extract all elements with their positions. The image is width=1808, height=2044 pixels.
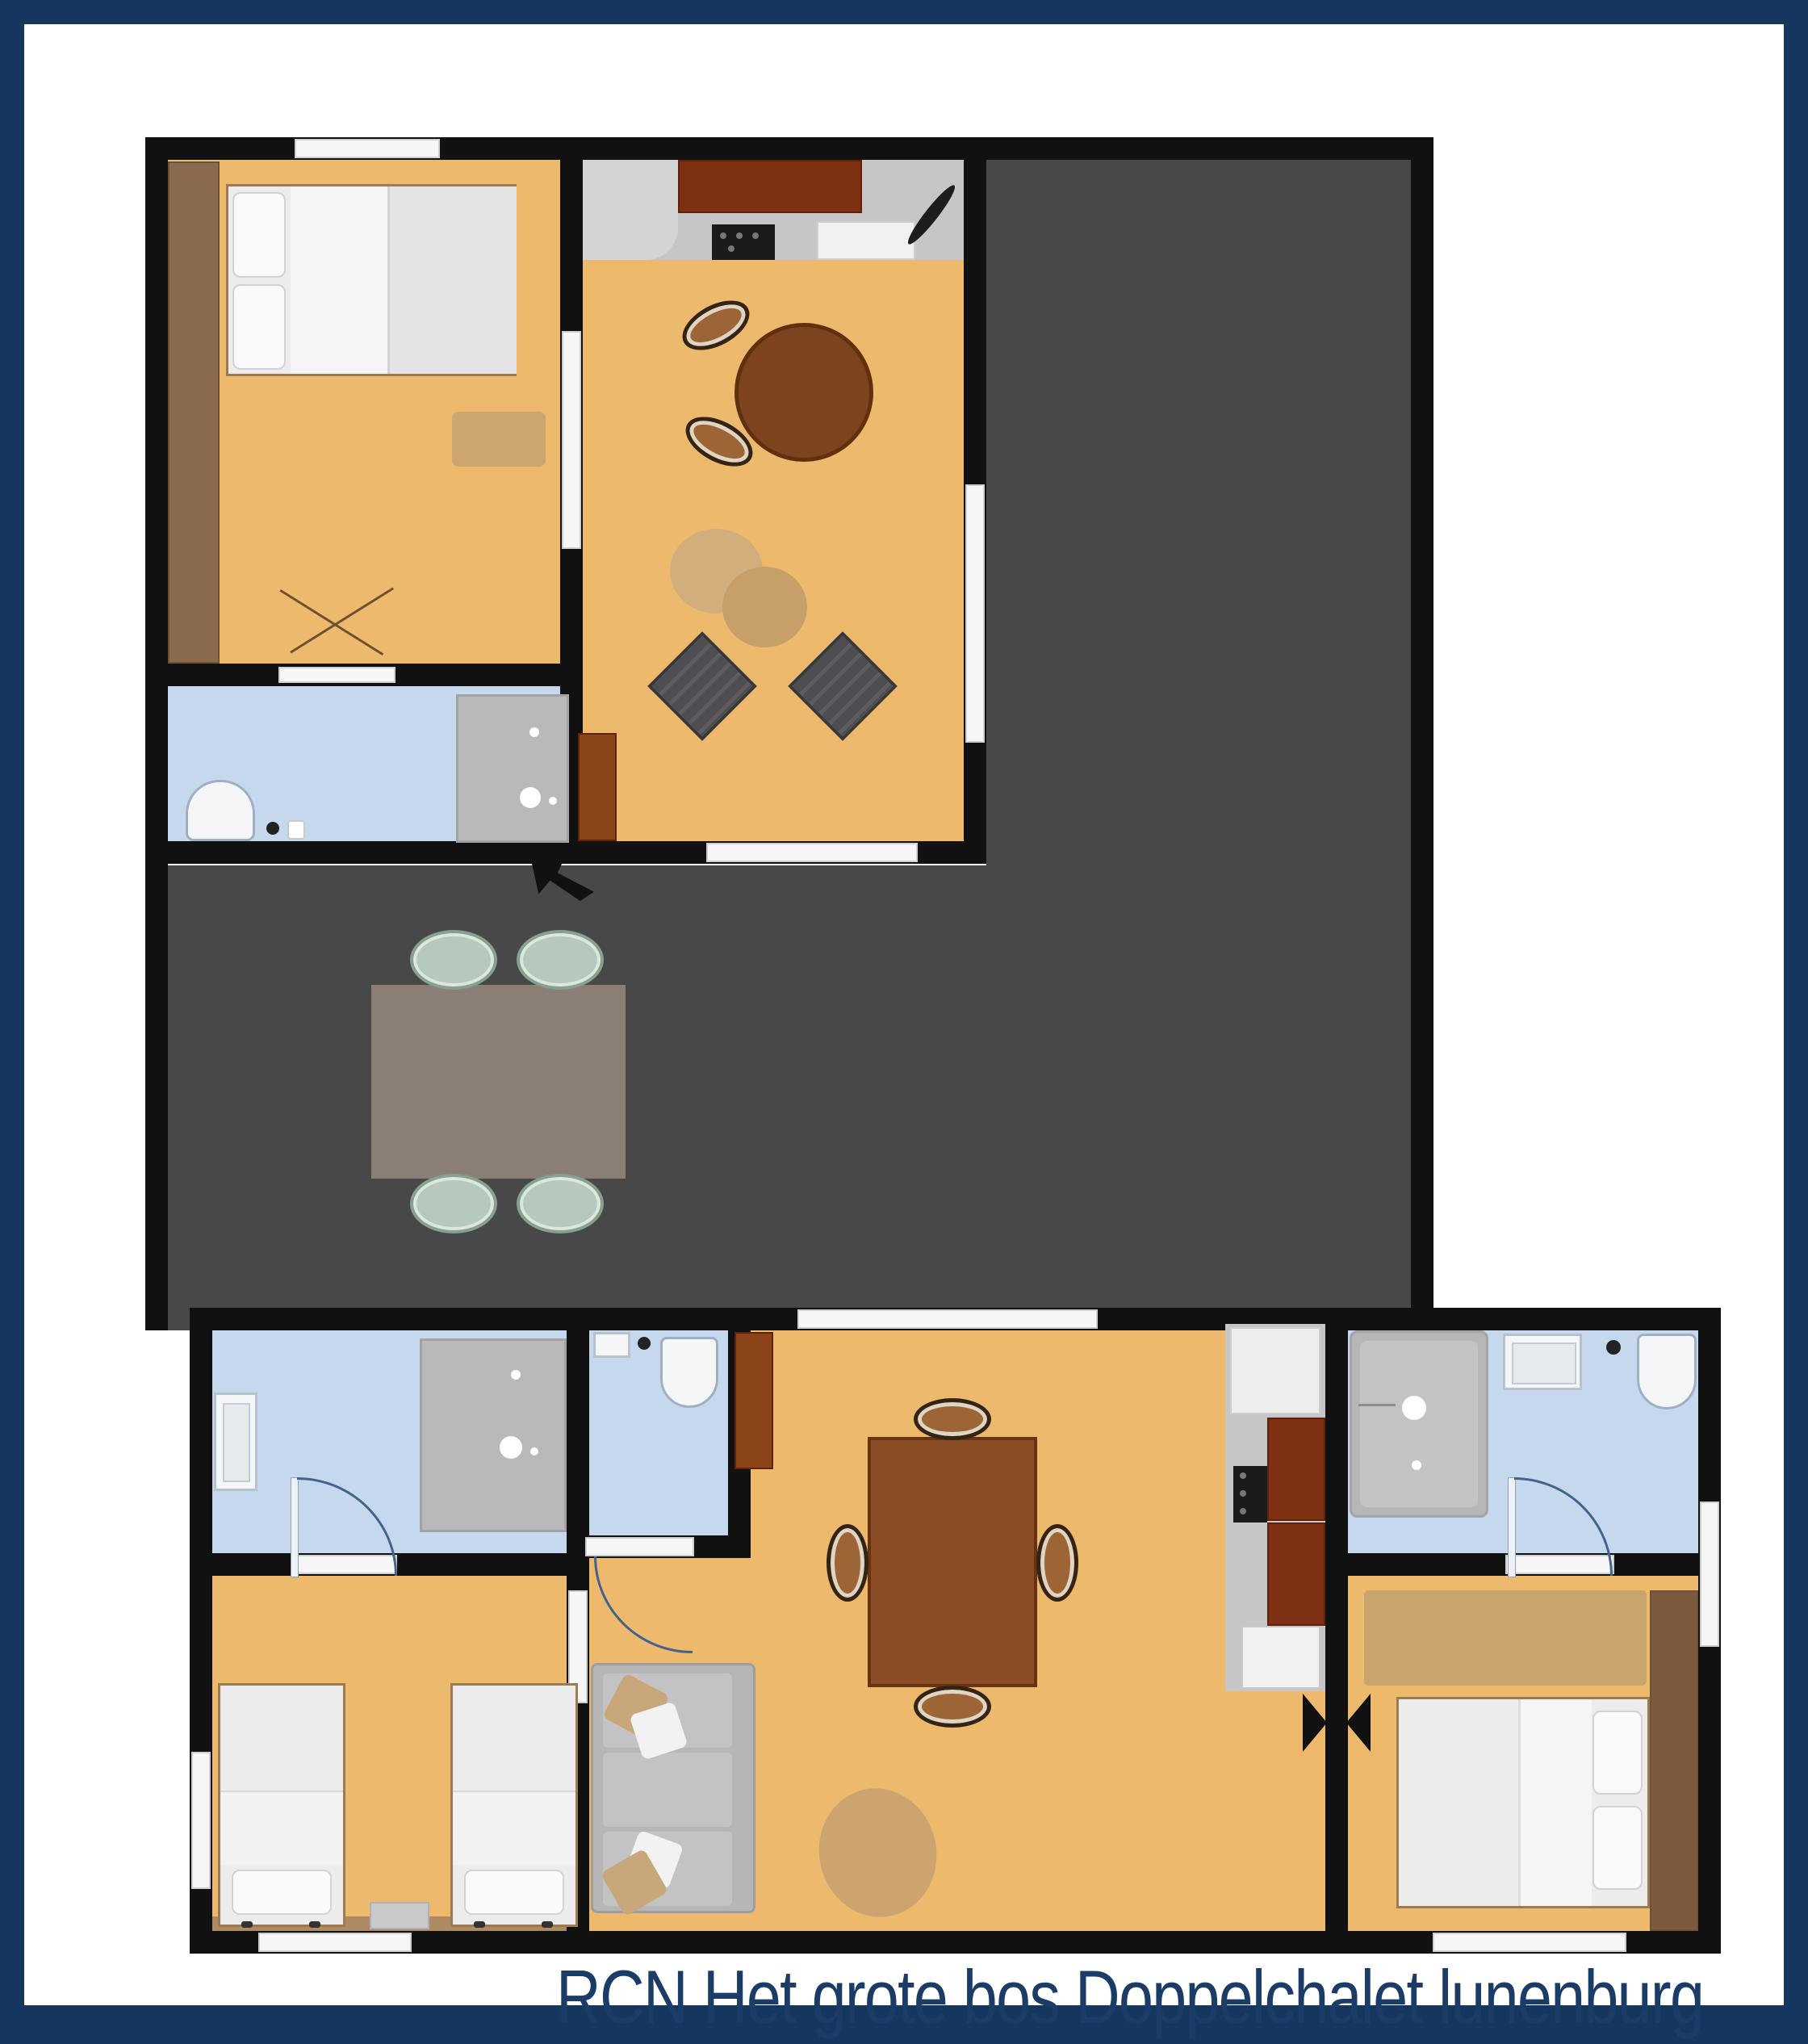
wardrobe-bedroom1 [168, 161, 220, 664]
dining-table-bottom [868, 1437, 1037, 1687]
cooktop-kitchen1 [712, 224, 775, 260]
shower1-head [520, 787, 541, 808]
window-bedroom4-right [1700, 1502, 1719, 1647]
wall-terrace-right [1411, 137, 1433, 1330]
kitchen2-cabinet-lower [1267, 1523, 1325, 1626]
sofa [591, 1663, 755, 1913]
shower2-head [500, 1436, 522, 1459]
window-bedroom4-bottom [1433, 1933, 1626, 1952]
shower2-knob [530, 1447, 538, 1456]
dining-chair-bottom [914, 1686, 991, 1728]
wall-top-unit-left [145, 137, 168, 865]
nightstand-bedroom3 [370, 1902, 429, 1929]
kitchen1-upper-cabinet [678, 160, 862, 213]
bin-bathroom1 [287, 820, 305, 840]
kitchen2-fridge [1230, 1327, 1320, 1414]
window-kitchen-bottom [706, 843, 918, 862]
toilet-room-toilet [660, 1337, 718, 1408]
faucet-dot-bathroom3 [1606, 1340, 1621, 1355]
dining-chair-right [1036, 1524, 1078, 1602]
sink-bathroom3 [1503, 1334, 1582, 1390]
shower2-dot [511, 1370, 521, 1380]
outdoor-chair-bottom-left [410, 1174, 497, 1234]
bathtub-faucet [1358, 1404, 1396, 1406]
folding-door-left-triangle [1303, 1694, 1327, 1752]
sink-bathroom2 [214, 1393, 257, 1491]
toilet-bathroom3 [1637, 1334, 1697, 1409]
kitchen-living-top-floor [583, 160, 964, 841]
bed1-sheet [291, 186, 387, 374]
dining-chair-left [827, 1524, 868, 1602]
toilet-bathroom1 [186, 780, 255, 841]
folding-door-right-triangle [1346, 1694, 1371, 1752]
kitchen2-sink [1241, 1626, 1320, 1689]
bathtub-drain [1402, 1396, 1426, 1420]
cooktop-kitchen2 [1233, 1466, 1267, 1523]
terrace-floor-lower [168, 865, 1411, 1330]
bed1-pillow-top [232, 192, 286, 278]
bed1-blanket [387, 186, 517, 374]
kitchen1-appliance [817, 221, 915, 260]
rug-living1-b [722, 567, 807, 647]
bed1-pillow-bottom [232, 284, 286, 370]
entry-door-bottom-unit [797, 1309, 1098, 1329]
toilet-room-sink [593, 1332, 630, 1358]
bathtub [1350, 1330, 1488, 1518]
cabinet-living1 [578, 733, 617, 841]
shower-bathroom1 [456, 694, 569, 843]
shower-bathroom2 [420, 1338, 567, 1532]
page-frame: RCN Het grote bos Doppelchalet lunenburg [0, 0, 1808, 2044]
bathtub-faucet-dot [1412, 1460, 1421, 1470]
sliding-door-kitchen-right [965, 484, 985, 743]
door-opening-toilet-room [585, 1537, 694, 1556]
kitchen1-sink-cabinet [583, 160, 678, 260]
door-bedroom1-kitchen [562, 331, 581, 549]
floorplan-caption: RCN Het grote bos Doppelchalet lunenburg [556, 1954, 1703, 2041]
twin-bed-right [450, 1683, 578, 1927]
shower1-knob [549, 797, 557, 805]
twin-bed-left [218, 1683, 345, 1927]
wardrobe-bedroom4 [1650, 1590, 1698, 1931]
outdoor-chair-top-left [410, 930, 497, 990]
toilet-brush-bathroom1 [266, 822, 279, 835]
wall-terrace-left [145, 843, 168, 1330]
shower1-dot [529, 727, 539, 737]
window-bedroom1-top [295, 139, 440, 158]
rug-bedroom1 [452, 412, 546, 467]
toilet-room-faucet-dot [638, 1337, 651, 1350]
wall-kitchen-bedroom4-divider [1325, 1308, 1348, 1954]
window-bedroom3-left [191, 1752, 211, 1889]
outdoor-chair-top-right [517, 930, 604, 990]
round-dining-table [734, 323, 873, 462]
outdoor-table [371, 985, 626, 1179]
cabinet-living2-tall [734, 1332, 773, 1469]
kitchen2-cabinet-upper [1267, 1418, 1325, 1521]
rug-bedroom4 [1364, 1590, 1647, 1686]
dining-chair-top [914, 1398, 991, 1440]
outdoor-chair-bottom-right [517, 1174, 604, 1234]
window-bedroom3-bottom [258, 1933, 412, 1952]
door-opening-bedroom1-bath1 [278, 667, 395, 683]
double-bed-bedroom4 [1396, 1697, 1650, 1908]
